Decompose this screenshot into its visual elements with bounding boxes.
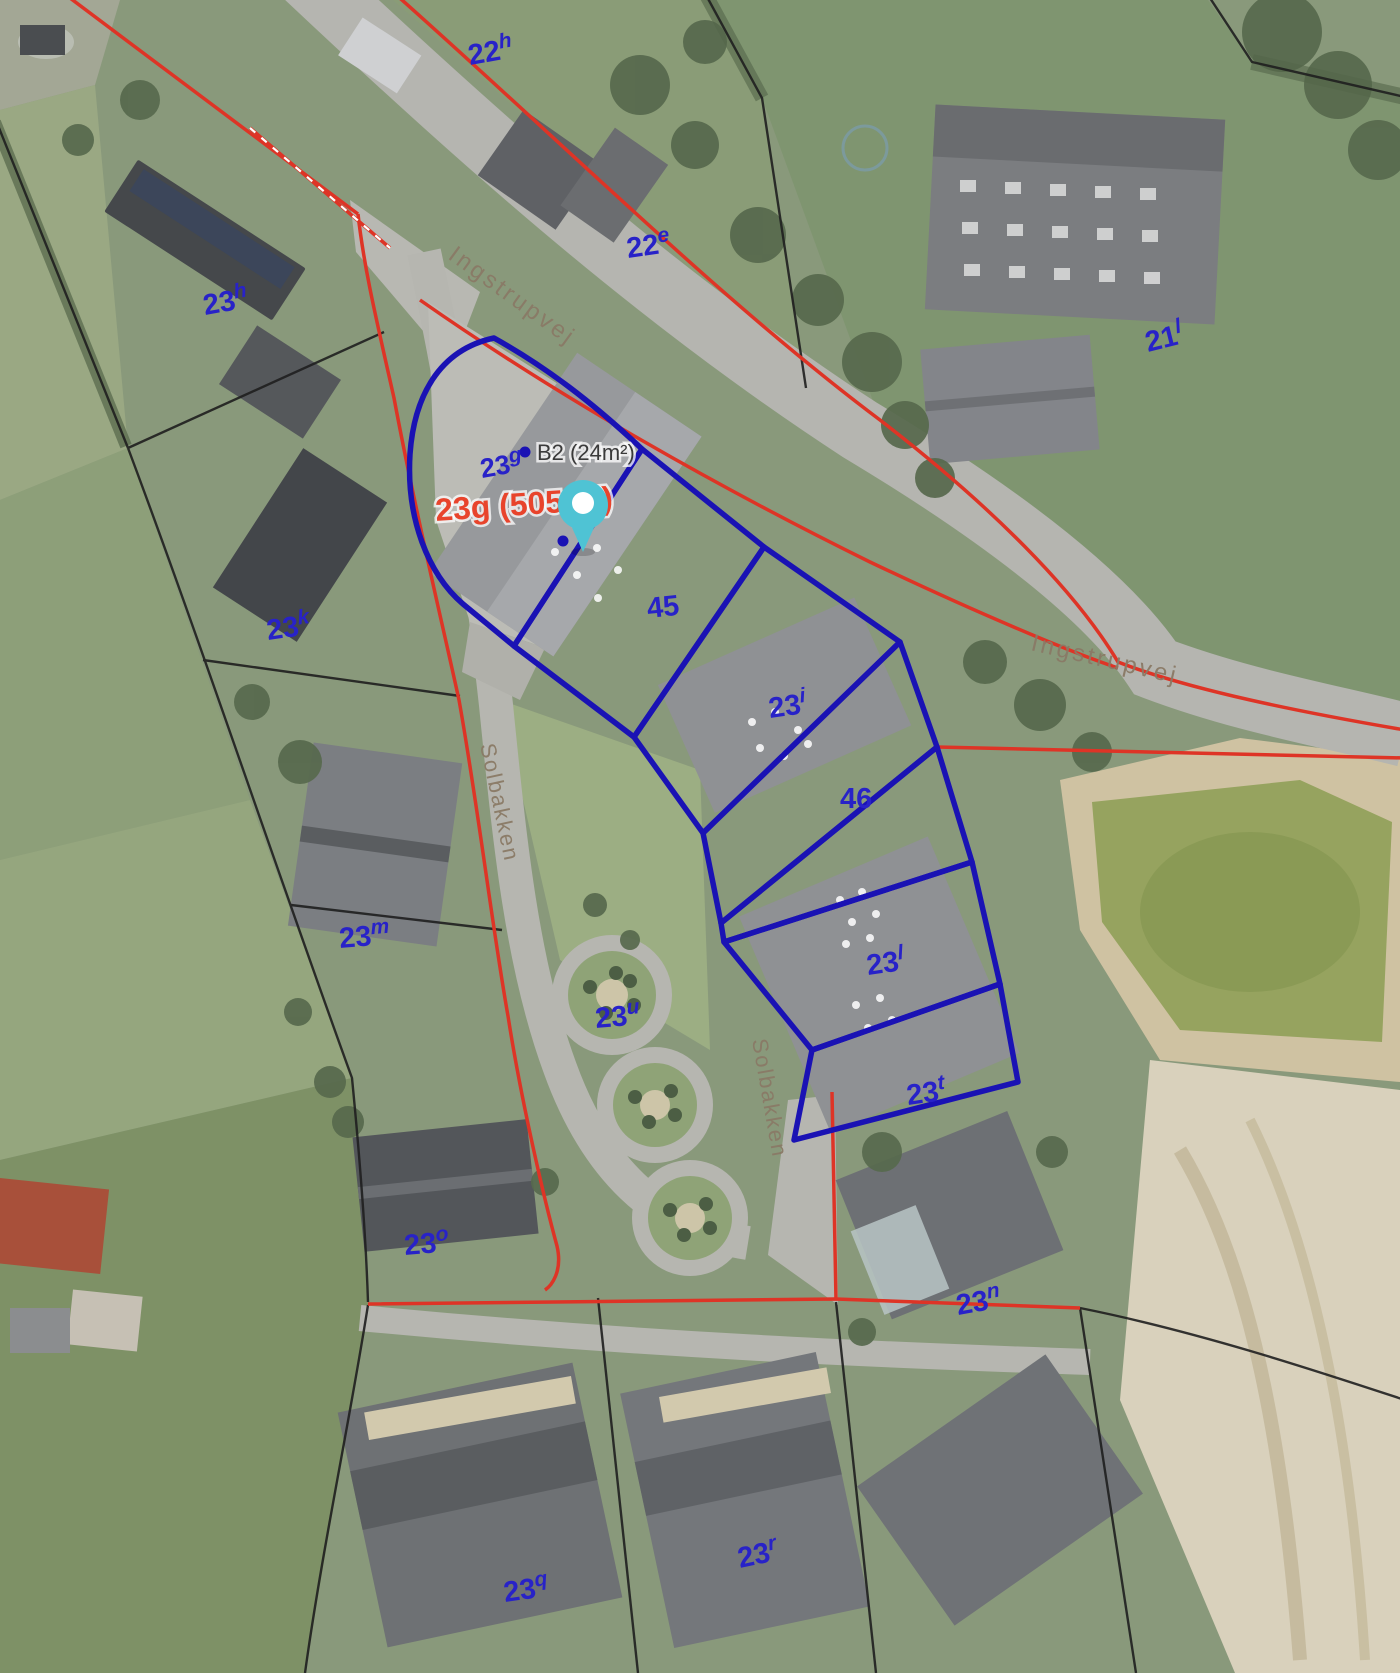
aerial-photo bbox=[0, 0, 1400, 1673]
pin-head-center bbox=[572, 492, 594, 514]
parcel-label-46: 46 bbox=[840, 783, 872, 815]
parcel-label-45: 45 bbox=[645, 590, 680, 625]
map-viewport[interactable]: Ingstrupvej Ingstrupvej Solbakken Solbak… bbox=[0, 0, 1400, 1673]
map-canvas[interactable]: Ingstrupvej Ingstrupvej Solbakken Solbak… bbox=[0, 0, 1400, 1673]
building-area-annotation: B2 (24m²) bbox=[537, 440, 635, 465]
parcel-point-dot bbox=[558, 536, 569, 547]
